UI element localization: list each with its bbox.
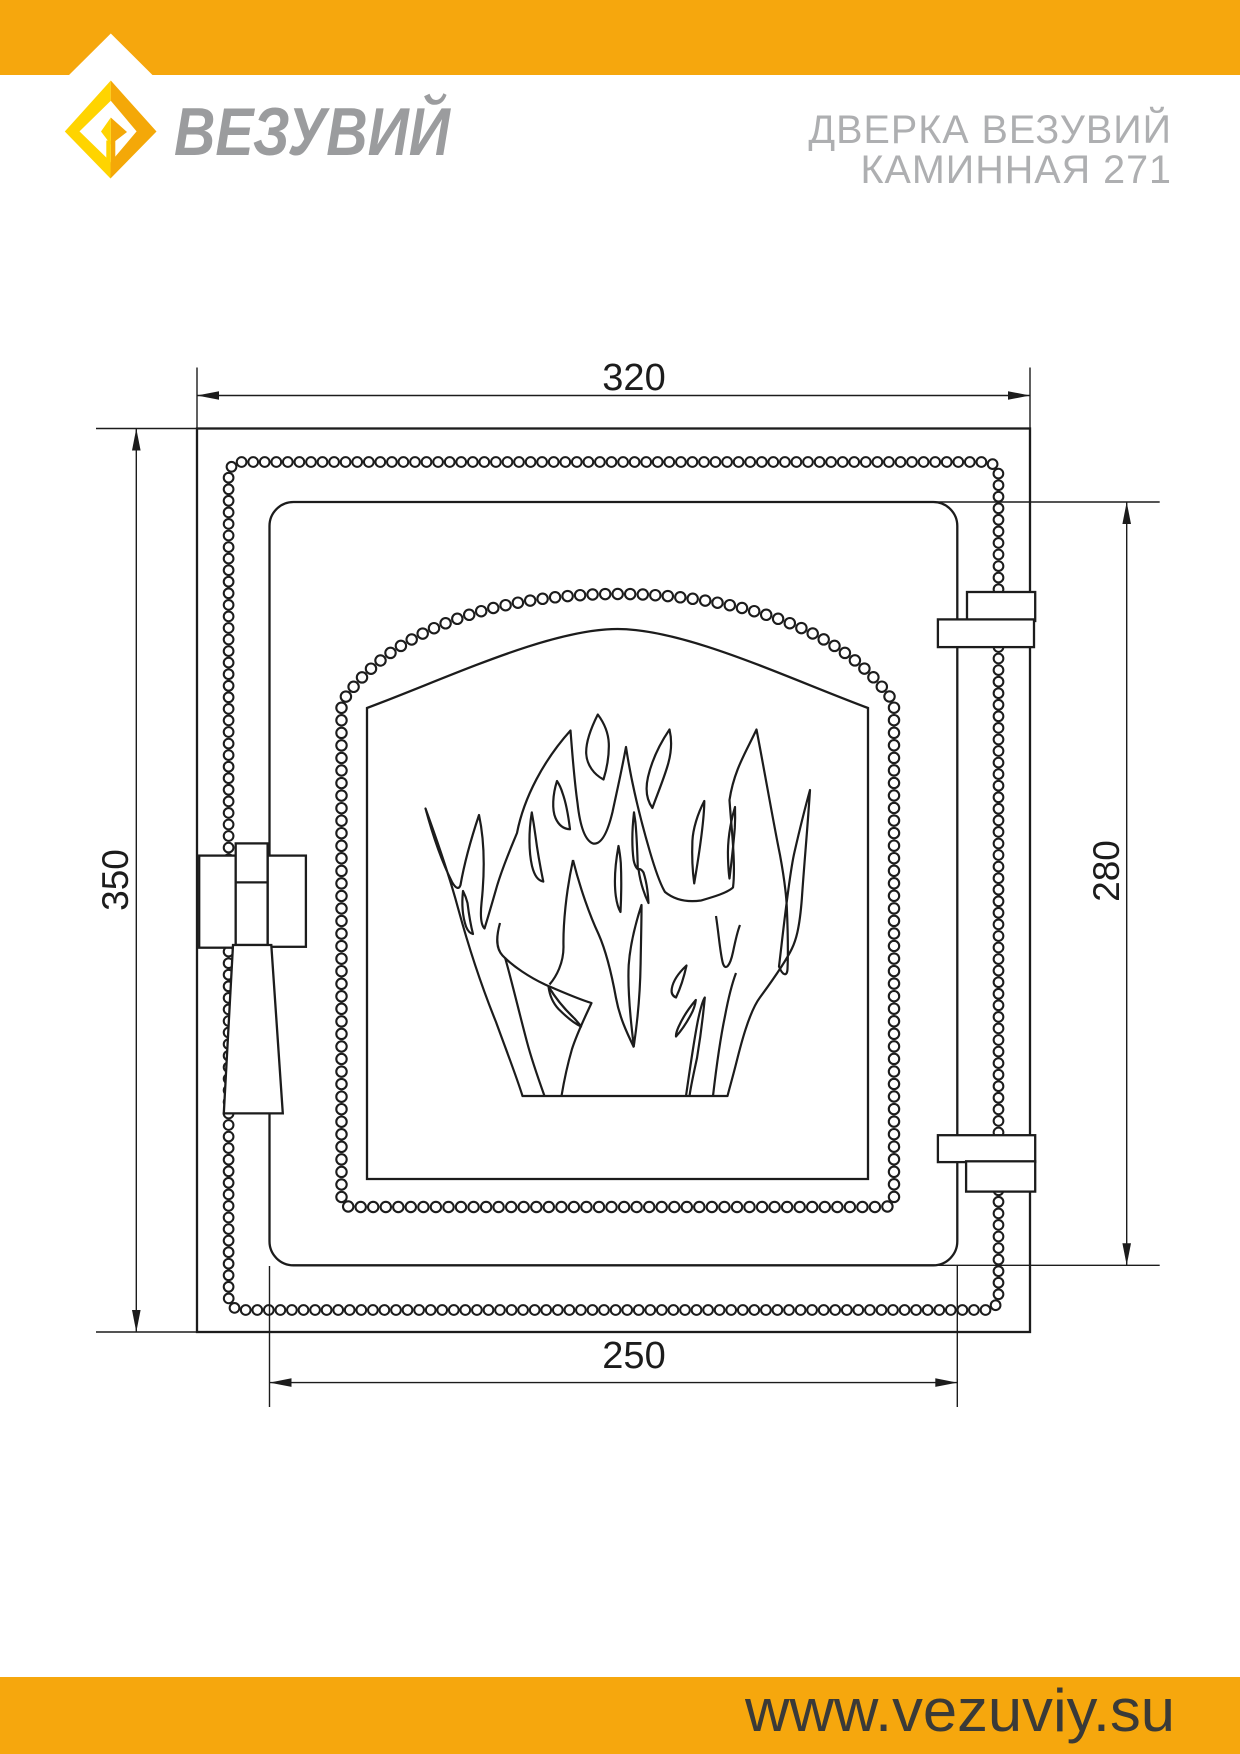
svg-text:ВЕЗУВИЙ: ВЕЗУВИЙ — [174, 92, 452, 170]
svg-text:250: 250 — [602, 1335, 665, 1377]
svg-text:www.vezuviy.su: www.vezuviy.su — [744, 1677, 1175, 1744]
svg-text:КАМИННАЯ 271: КАМИННАЯ 271 — [861, 148, 1172, 192]
svg-text:ДВЕРКА ВЕЗУВИЙ: ДВЕРКА ВЕЗУВИЙ — [808, 107, 1172, 152]
svg-text:320: 320 — [602, 357, 665, 399]
svg-text:280: 280 — [1086, 840, 1127, 902]
svg-text:350: 350 — [95, 849, 136, 911]
